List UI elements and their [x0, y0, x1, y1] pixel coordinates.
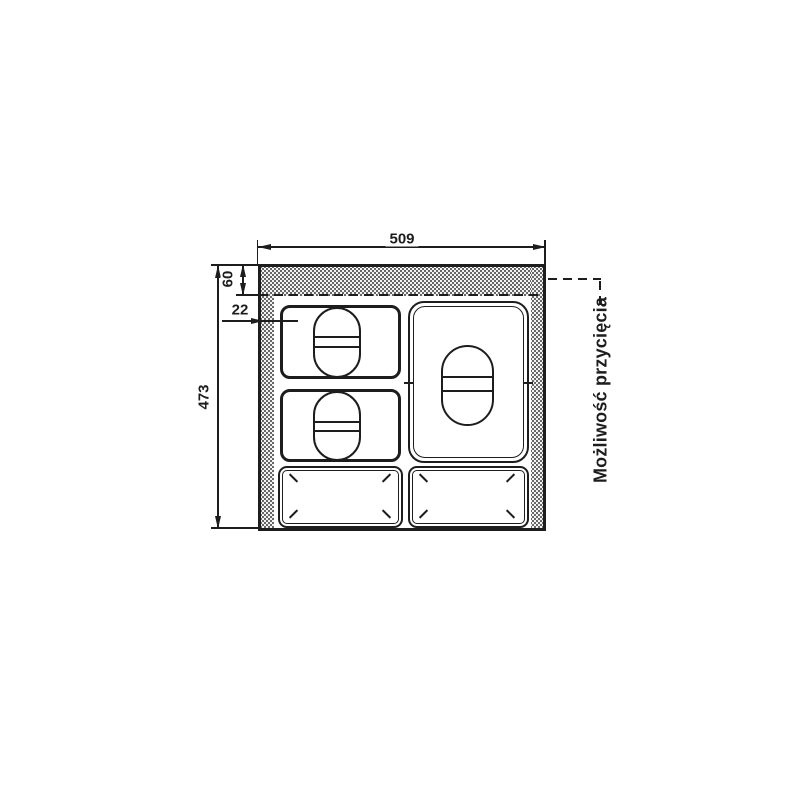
lid-handle-line: [315, 346, 359, 348]
dim-width-arrow-left: [258, 244, 271, 250]
dim-topband-arrow-top: [240, 264, 246, 277]
dim-topband-label: 60: [221, 267, 236, 292]
container-small-middle-lid-oval: [313, 391, 361, 461]
container-large-side-tick-left: [404, 382, 414, 384]
stipple-band-right: [531, 267, 543, 528]
lid-handle-line: [315, 430, 359, 432]
dim-width-label: 509: [385, 232, 418, 247]
dim-height-label: 473: [197, 380, 212, 413]
dim-sideband-arrow: [251, 318, 264, 324]
drawer-insert-drawing: 509 473 60 22 Możliwość przycięcia: [0, 0, 800, 800]
container-large-side-tick-right: [523, 382, 533, 384]
stipple-band-left: [261, 267, 274, 528]
lid-handle-line: [443, 376, 492, 378]
lid-handle-line: [315, 421, 359, 423]
dim-width-arrow-right: [533, 244, 546, 250]
dim-topband-arrow-bottom: [240, 283, 246, 296]
tray-bottom-left-inner-rim: [282, 470, 399, 524]
container-large-lid-oval: [441, 345, 494, 426]
cut-dashed-line: [259, 294, 545, 296]
stipple-band-top: [261, 267, 543, 296]
lid-handle-line: [443, 390, 492, 392]
dim-height-line: [217, 265, 219, 529]
trim-note-label: Możliwość przycięcia: [591, 297, 612, 483]
dim-height-arrow-bottom: [215, 516, 221, 529]
dim-sideband-label: 22: [228, 303, 253, 318]
lid-handle-line: [315, 336, 359, 338]
trim-leader-horizontal: [548, 278, 601, 280]
container-small-top-lid-oval: [313, 307, 361, 378]
